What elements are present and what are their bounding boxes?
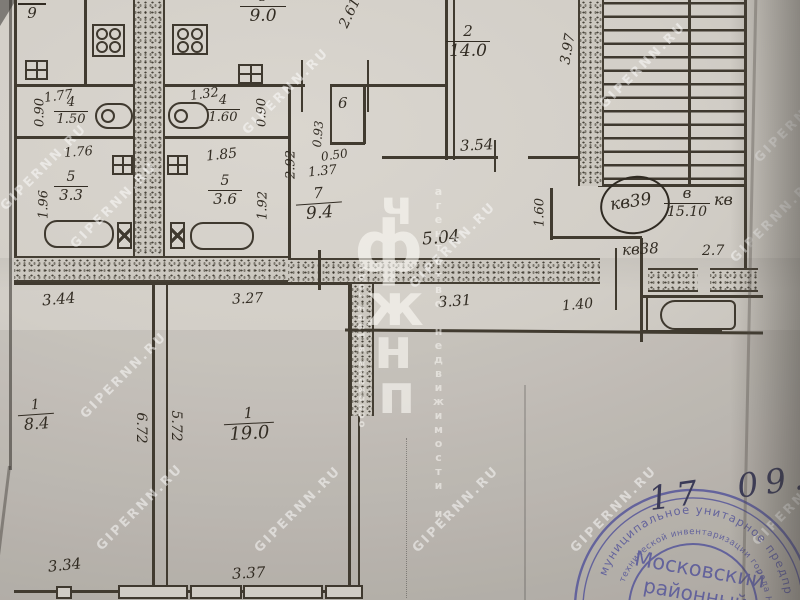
wall [14,0,17,258]
dim-label: 0.90 [34,93,47,133]
wall [615,248,617,310]
wall [528,156,580,159]
window-cross-icon [25,60,48,80]
dim-label: 3.37 [232,565,266,582]
dim-label: 3.34 [47,556,82,574]
floor-plan-photo: 9 3 9.0 4 1.50 4 1.60 5 3.3 5 3.6 6 2 14… [0,0,800,600]
wall [330,86,332,144]
dim-label: 6.72 [134,408,148,448]
bathtub-icon [190,222,254,250]
dim-label: 1.96 [38,185,51,225]
wall [165,136,291,139]
bearing-wall [14,256,288,282]
bathtub-icon [660,300,736,330]
dim-label: 3.27 [232,291,264,307]
dim-label: 1.76 [64,145,94,160]
stair-steps [691,2,744,183]
bearing-wall [710,268,758,292]
dim-label: 1.40 [561,297,593,314]
window-cross-icon [112,155,133,175]
wall [14,282,350,285]
door-leaf [367,60,369,112]
wall [646,297,648,333]
dim-label: 3.54 [460,137,494,154]
apartment-38-dim: 2.7 [702,244,724,258]
window-icon [56,586,72,599]
dim-label: 1.60 [534,193,547,233]
door-leaf [301,60,303,112]
dim-label: 1.77 [43,88,73,105]
wc-icon [170,222,185,249]
window-cross-icon [167,155,188,175]
dim-label: 0.50 [320,147,348,163]
wc-icon [117,222,132,249]
wall [330,84,447,87]
apartment-38-label: кв38 [622,241,660,258]
bearing-wall [133,0,165,272]
sink-icon [95,103,133,129]
bathtub-icon [44,220,114,248]
room-label-hall7: 7 9.4 [295,184,343,224]
bearing-wall [578,0,604,186]
stove-icon [92,24,125,57]
sink-icon [168,102,209,129]
wall [14,136,135,139]
bearing-wall [648,268,698,292]
room-label-6: 6 [338,96,348,111]
room-label-room1b: 1 19.0 [223,405,275,446]
bearing-wall [288,258,600,284]
dim-label: 1.85 [205,146,237,163]
dim-label: 3.31 [438,293,472,310]
wall [550,236,642,239]
window-icon [325,585,363,599]
room-label-left-kitchen: 9 [18,2,46,21]
dim-label: 1.92 [257,186,270,226]
dim-label: 0.90 [256,93,269,133]
room-label-wc5b: 5 3.6 [208,174,242,208]
window-icon [190,585,242,599]
dim-label: 1.37 [307,164,337,180]
stove-icon [172,24,208,55]
door-leaf [494,140,496,172]
room-label-kitchen3: 3 9.0 [240,0,286,26]
stair-steps [601,2,688,183]
window-cross-icon [238,64,263,84]
wall [744,0,747,272]
wall [358,416,360,597]
wall [152,284,155,598]
wall [382,156,498,159]
bearing-wall [350,284,374,416]
wall [363,86,366,144]
wall [14,84,135,87]
wall [330,142,365,145]
wall [165,84,305,87]
window-icon [243,585,323,599]
dim-label: 5.72 [169,406,183,446]
wall [640,295,763,298]
room-label-wc5a: 5 3.3 [54,170,88,204]
dim-label: 2.92 [285,145,298,185]
apartment-39-unit: кв [714,192,733,208]
dim-label: 5.04 [421,228,460,248]
room-label-room2: 2 14.0 [446,24,490,61]
wall [84,0,87,86]
window-icon [118,585,188,599]
room-label-room1a: 1 8.4 [17,397,55,435]
dim-label: 1.32 [189,86,219,103]
wall [550,188,553,240]
dim-label: 3.44 [41,291,76,309]
apartment-39-room: в 15.10 [664,186,710,220]
